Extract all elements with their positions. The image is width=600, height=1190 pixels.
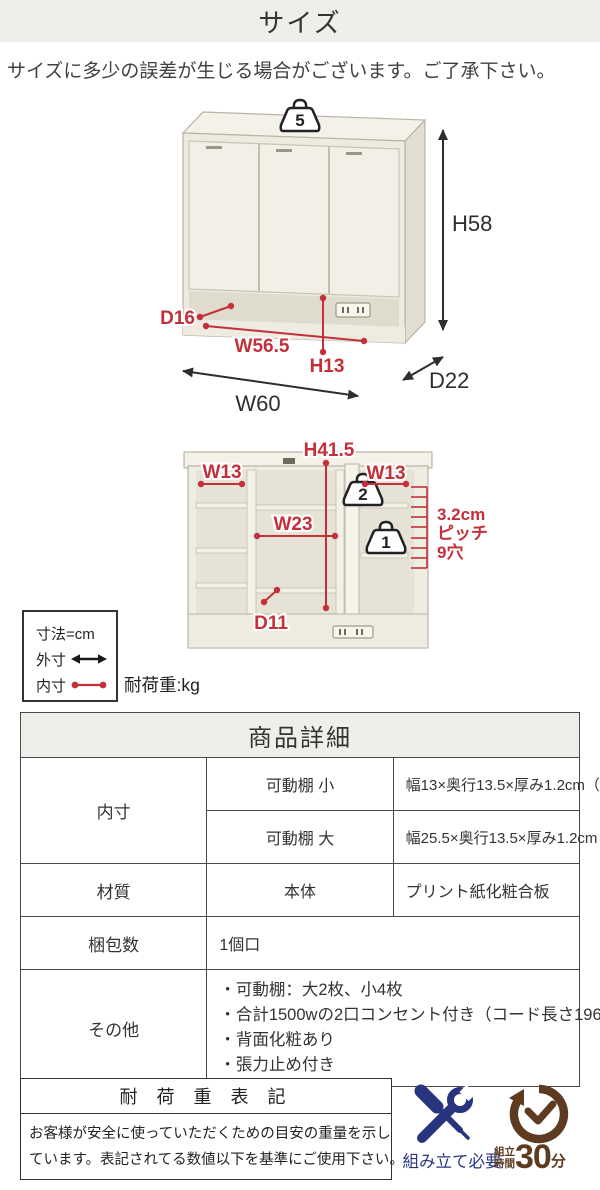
outer-dim-arrow-icon (71, 653, 107, 665)
assembly-time-value: 30 (515, 1140, 551, 1174)
product-details-table: 商品詳細 内寸 可動棚 小 幅13×奥行13.5×厚み1.2cm（3.2cmピッ… (20, 712, 580, 1087)
dim-w13-right-label: W13 (366, 463, 405, 484)
dim-w23-label: W23 (273, 514, 312, 535)
other-item: ・張力止め付き (219, 1053, 579, 1078)
load-note-box: 耐 荷 重 表 記 お客様が安全に使っていただくための目安の重量を示し ています… (20, 1078, 392, 1180)
dim-h41-label: H41.5 (304, 440, 355, 461)
inner-dim-line-icon (71, 680, 107, 690)
legend-box: 寸法=cm 外寸 内寸 (22, 610, 118, 702)
value-packages: 1個口 (207, 917, 580, 970)
door-pull-icon (346, 152, 362, 155)
right-load-value: 1 (381, 533, 390, 552)
door-pull-icon (206, 146, 222, 149)
value-other: ・可動棚：大2枚、小4枚 ・合計1500wの2口コンセント付き（コード長さ196… (207, 970, 580, 1087)
pitch-label-2: ピッチ (437, 524, 488, 543)
power-outlet-icon (336, 303, 370, 317)
value-material: プリント紙化粧合板 (393, 864, 579, 917)
row-sub-body: 本体 (207, 864, 393, 917)
row-label-packages: 梱包数 (21, 917, 207, 970)
other-item: ・可動棚：大2枚、小4枚 (219, 978, 579, 1003)
pitch-label-1: 3.2cm (437, 505, 485, 524)
dim-h13-label: H13 (310, 356, 345, 377)
assembly-tools-icon (404, 1082, 488, 1148)
dim-w60-label: W60 (235, 391, 280, 416)
dimension-diagrams-canvas: 5 H58 W60 D22 D16 W56.5 H13 (0, 0, 600, 710)
pitch-label-3: 9穴 (437, 542, 463, 562)
power-outlet-icon-bottom (333, 626, 373, 638)
dim-h58-label: H58 (452, 211, 492, 236)
value-shelf-small: 幅13×奥行13.5×厚み1.2cm（3.2cmピッチ9穴） (393, 758, 579, 811)
table-title: 商品詳細 (21, 713, 580, 758)
dim-d22-label: D22 (429, 368, 469, 393)
row-label-inner-dims: 内寸 (21, 758, 207, 864)
other-item: ・背面化粧あり (219, 1028, 579, 1053)
load-note-line1: お客様が安全に使っていただくための目安の重量を示し (29, 1121, 383, 1147)
load-note-line2: ています。表記されてる数値以下を基準にご使用下さい。 (29, 1147, 383, 1173)
assembly-required-label: 組み立て必要 (400, 1148, 504, 1172)
product-size-page: サイズ サイズに多少の誤差が生じる場合がございます。ご了承下さい。 (0, 0, 600, 1190)
assembly-time-unit: 分 (551, 1150, 566, 1174)
cabinet-interior-illustration: 2 1 (184, 440, 488, 648)
load-weight-icon-top: 5 (281, 100, 320, 131)
load-note-title: 耐 荷 重 表 記 (21, 1079, 391, 1114)
dim-w56-label: W56.5 (235, 336, 290, 357)
door-pull-icon (276, 149, 292, 152)
dim-d11-label: D11 (254, 613, 288, 634)
row-sub-shelf-small: 可動棚 小 (207, 758, 393, 811)
legend-unit-label: 寸法=cm (36, 623, 95, 644)
value-shelf-large: 幅25.5×奥行13.5×厚み1.2cm（3.2cmピッチ9穴） (393, 811, 579, 864)
load-note-body: お客様が安全に使っていただくための目安の重量を示し ています。表記されてる数値以… (21, 1114, 391, 1173)
row-label-material: 材質 (21, 864, 207, 917)
load-weight-value: 5 (295, 111, 304, 130)
other-item: ・合計1500wの2口コンセント付き（コード長さ196cm） (219, 1003, 579, 1028)
dim-d16-label: D16 (160, 308, 195, 329)
dim-w13-left-label: W13 (202, 462, 241, 483)
legend-inner-label: 内寸 (36, 675, 66, 696)
center-load-value: 2 (358, 485, 367, 504)
load-unit-label: 耐荷重:kg (124, 672, 200, 697)
assembly-time-label: 組立 時間 30 分 (494, 1140, 566, 1174)
row-sub-shelf-large: 可動棚 大 (207, 811, 393, 864)
assembly-time-clock-icon (500, 1078, 578, 1146)
assembly-time-prefix: 組立 時間 (494, 1146, 515, 1174)
cabinet-exterior-illustration: 5 H58 W60 D22 D16 W56.5 H13 (160, 100, 492, 416)
legend-outer-label: 外寸 (36, 649, 66, 670)
row-label-other: その他 (21, 970, 207, 1087)
cabinet-doors (189, 141, 399, 297)
